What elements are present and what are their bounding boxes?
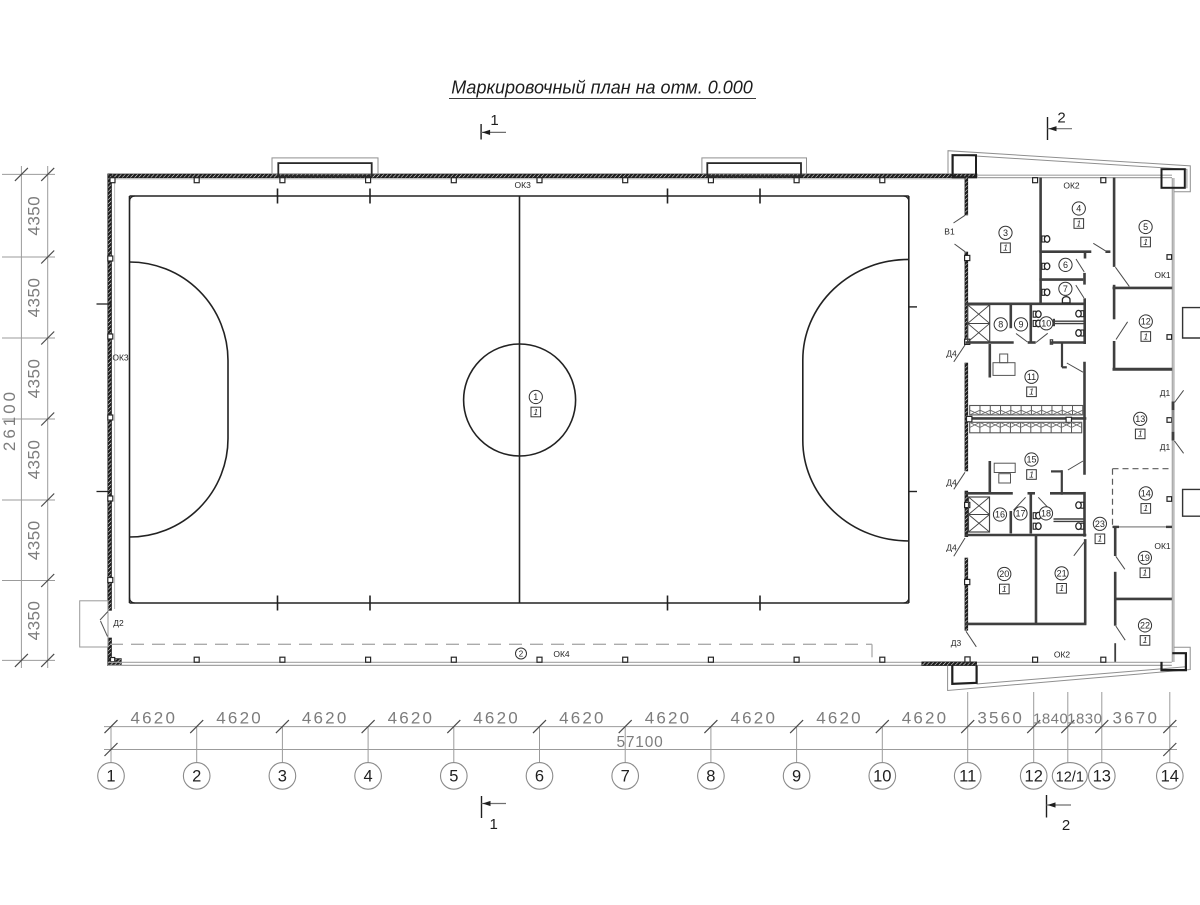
svg-text:2: 2 bbox=[519, 650, 524, 659]
svg-text:14: 14 bbox=[1161, 768, 1179, 786]
svg-text:5: 5 bbox=[449, 768, 458, 786]
svg-text:57100: 57100 bbox=[616, 734, 663, 751]
svg-text:3: 3 bbox=[1003, 228, 1008, 238]
svg-text:4620: 4620 bbox=[388, 709, 435, 728]
svg-text:1840: 1840 bbox=[1033, 711, 1068, 728]
svg-text:4350: 4350 bbox=[25, 359, 44, 399]
svg-text:ОК4: ОК4 bbox=[553, 649, 570, 659]
svg-text:10: 10 bbox=[1041, 319, 1051, 329]
svg-text:ОК1: ОК1 bbox=[1154, 541, 1171, 551]
svg-text:4350: 4350 bbox=[25, 196, 44, 236]
svg-text:2: 2 bbox=[192, 768, 201, 786]
svg-text:12: 12 bbox=[1141, 317, 1151, 327]
svg-text:1: 1 bbox=[1076, 218, 1081, 228]
svg-text:4620: 4620 bbox=[816, 709, 863, 728]
svg-text:4620: 4620 bbox=[473, 709, 520, 728]
svg-text:1: 1 bbox=[106, 768, 115, 786]
svg-text:ОК1: ОК1 bbox=[1154, 270, 1171, 280]
svg-text:26100: 26100 bbox=[0, 389, 19, 451]
svg-text:ОК3: ОК3 bbox=[112, 353, 129, 363]
svg-text:19: 19 bbox=[1140, 553, 1150, 563]
svg-text:4350: 4350 bbox=[25, 278, 44, 318]
svg-text:12: 12 bbox=[1025, 768, 1043, 786]
svg-text:1: 1 bbox=[1002, 584, 1007, 594]
svg-text:1: 1 bbox=[1059, 583, 1064, 593]
svg-text:5: 5 bbox=[1143, 222, 1148, 232]
svg-text:6: 6 bbox=[535, 768, 544, 786]
svg-text:4: 4 bbox=[1076, 204, 1081, 214]
svg-text:1: 1 bbox=[1029, 469, 1034, 479]
svg-text:9: 9 bbox=[1018, 320, 1023, 330]
svg-text:Д4: Д4 bbox=[946, 478, 957, 488]
svg-text:7: 7 bbox=[1063, 284, 1068, 294]
svg-text:1: 1 bbox=[490, 112, 498, 129]
svg-text:8: 8 bbox=[998, 320, 1003, 330]
svg-text:ОК2: ОК2 bbox=[1054, 649, 1071, 659]
svg-text:1: 1 bbox=[533, 392, 538, 402]
svg-text:13: 13 bbox=[1135, 414, 1145, 424]
svg-text:4620: 4620 bbox=[730, 709, 777, 728]
svg-text:3670: 3670 bbox=[1112, 709, 1159, 728]
svg-text:4620: 4620 bbox=[902, 709, 949, 728]
svg-text:1: 1 bbox=[1138, 429, 1143, 439]
svg-text:Д1: Д1 bbox=[1160, 388, 1171, 398]
svg-text:В1: В1 bbox=[944, 227, 955, 237]
svg-text:4620: 4620 bbox=[216, 709, 263, 728]
svg-text:Д2: Д2 bbox=[113, 618, 124, 628]
svg-text:1: 1 bbox=[1143, 331, 1148, 341]
svg-text:Д4: Д4 bbox=[946, 349, 957, 359]
svg-text:Д1: Д1 bbox=[1160, 442, 1171, 452]
svg-text:6: 6 bbox=[1063, 260, 1068, 270]
svg-text:4350: 4350 bbox=[25, 440, 44, 480]
svg-text:8: 8 bbox=[706, 768, 715, 786]
svg-text:11: 11 bbox=[959, 768, 976, 786]
svg-text:14: 14 bbox=[1141, 489, 1151, 499]
svg-text:2: 2 bbox=[1057, 110, 1065, 127]
svg-text:7: 7 bbox=[621, 768, 630, 786]
svg-text:3560: 3560 bbox=[977, 709, 1024, 728]
svg-text:4620: 4620 bbox=[130, 709, 177, 728]
svg-text:1: 1 bbox=[1143, 503, 1148, 513]
svg-text:11: 11 bbox=[1027, 372, 1036, 382]
svg-text:1830: 1830 bbox=[1067, 711, 1102, 728]
svg-text:4350: 4350 bbox=[25, 520, 44, 560]
svg-text:13: 13 bbox=[1093, 768, 1111, 786]
svg-text:4620: 4620 bbox=[645, 709, 692, 728]
svg-text:Маркировочный план на отм. 0.0: Маркировочный план на отм. 0.000 bbox=[451, 78, 753, 98]
svg-text:1: 1 bbox=[533, 407, 538, 417]
svg-text:2: 2 bbox=[1062, 817, 1070, 834]
svg-text:9: 9 bbox=[792, 768, 801, 786]
svg-text:22: 22 bbox=[1140, 621, 1150, 631]
svg-text:1: 1 bbox=[490, 816, 498, 833]
svg-text:15: 15 bbox=[1026, 455, 1036, 465]
svg-text:ОК2: ОК2 bbox=[1063, 180, 1080, 190]
svg-text:1: 1 bbox=[1098, 534, 1103, 544]
svg-text:12/1: 12/1 bbox=[1056, 769, 1084, 785]
svg-text:Д4: Д4 bbox=[946, 543, 957, 553]
svg-text:16: 16 bbox=[995, 510, 1005, 520]
svg-text:ОК3: ОК3 bbox=[515, 180, 532, 190]
svg-text:23: 23 bbox=[1095, 519, 1105, 529]
svg-text:18: 18 bbox=[1041, 509, 1051, 519]
svg-text:17: 17 bbox=[1015, 509, 1025, 519]
svg-text:4: 4 bbox=[364, 768, 373, 786]
svg-text:1: 1 bbox=[1143, 635, 1148, 645]
svg-text:10: 10 bbox=[873, 768, 891, 786]
svg-text:Д3: Д3 bbox=[951, 638, 962, 648]
svg-text:1: 1 bbox=[1029, 387, 1034, 397]
svg-text:4620: 4620 bbox=[559, 709, 606, 728]
svg-text:4350: 4350 bbox=[25, 601, 44, 641]
svg-text:20: 20 bbox=[999, 569, 1009, 579]
svg-text:1: 1 bbox=[1143, 568, 1148, 578]
svg-text:1: 1 bbox=[1003, 243, 1008, 253]
svg-text:4620: 4620 bbox=[302, 709, 349, 728]
svg-text:21: 21 bbox=[1057, 569, 1067, 579]
svg-text:1: 1 bbox=[1143, 237, 1148, 247]
svg-text:3: 3 bbox=[278, 768, 287, 786]
